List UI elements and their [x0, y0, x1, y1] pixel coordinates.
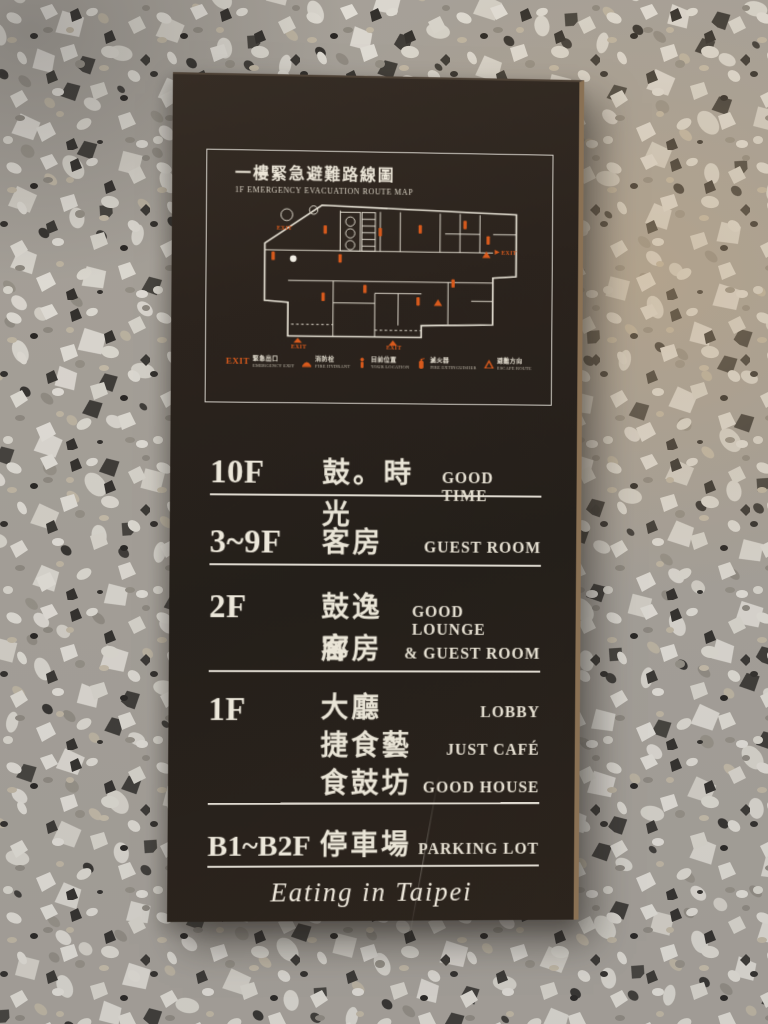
svg-text:EXIT: EXIT — [386, 346, 402, 352]
directory-sign: 一樓緊急避難路線圖 1F EMERGENCY EVACUATION ROUTE … — [167, 72, 584, 922]
venue-name-zh: 客房 — [321, 628, 383, 670]
floor-label: 1F — [208, 689, 246, 731]
directory-row-2f: 2F 鼓逸廊 GOOD LOUNGE 客房 & GUEST ROOM — [209, 586, 541, 672]
directory-row-b1-b2f: B1~B2F 停車場 PARKING LOT — [207, 825, 539, 868]
legend-item-emergency-exit: EXIT 緊急出口 EMERGENCY EXIT — [226, 356, 295, 370]
escape-direction-icon — [483, 359, 494, 370]
venue-name-en: GUEST ROOM — [424, 539, 541, 557]
legend-item-fire-hydrant: 消防栓 FIRE HYDRANT — [301, 356, 350, 369]
venue-name-en: GOOD TIME — [442, 470, 542, 506]
evacuation-map-panel: 一樓緊急避難路線圖 1F EMERGENCY EVACUATION ROUTE … — [205, 149, 554, 406]
directory-row-1f: 1F 大廳 LOBBY 捷食藝 JUST CAFÉ 食鼓坊 GOOD HOUSE — [208, 689, 540, 805]
venue-name-zh: 大廳 — [321, 689, 383, 727]
map-exit-labels: EXIT EXIT EXIT EXIT — [276, 226, 517, 352]
map-title-zh: 一樓緊急避難路線圖 — [235, 159, 535, 188]
venue-name-zh: 捷食藝 — [320, 727, 412, 765]
your-location-icon — [357, 357, 368, 368]
floor-label: 10F — [210, 451, 265, 493]
venue-name-en: LOBBY — [480, 704, 540, 722]
directory-row-3-9f: 3~9F 客房 GUEST ROOM — [209, 521, 541, 567]
fire-extinguisher-icon — [416, 358, 427, 369]
exit-badge-icon: EXIT — [226, 356, 250, 366]
fire-equipment-marks — [271, 218, 500, 347]
terrazzo-wall: 一樓緊急避難路線圖 1F EMERGENCY EVACUATION ROUTE … — [0, 0, 768, 1024]
venue-name-zh: 客房 — [322, 522, 384, 564]
legend-item-your-location: 目前位置 YOUR LOCATION — [357, 357, 409, 370]
floor-label: 3~9F — [209, 521, 281, 563]
venue-name-en: & GUEST ROOM — [404, 646, 540, 664]
hotel-slogan-script: Eating in Taipei — [167, 876, 574, 909]
legend-item-fire-extinguisher: 滅火器 FIRE EXTINGUISHER — [416, 358, 476, 372]
venue-name-en: PARKING LOT — [418, 841, 539, 859]
directory-row-10f: 10F 鼓。時光 GOOD TIME — [210, 451, 542, 497]
venue-name-en: JUST CAFÉ — [446, 742, 540, 760]
floor-label: 2F — [209, 586, 247, 628]
venue-name-en: GOOD LOUNGE — [412, 604, 541, 640]
svg-text:EXIT: EXIT — [277, 226, 293, 232]
venue-name-en: GOOD HOUSE — [423, 779, 540, 797]
fire-hydrant-icon — [301, 356, 312, 367]
svg-text:EXIT: EXIT — [291, 345, 307, 351]
floor-label: B1~B2F — [207, 826, 311, 868]
venue-name-zh: 停車場 — [320, 825, 412, 865]
your-location-dot — [290, 255, 297, 262]
map-legend: EXIT 緊急出口 EMERGENCY EXIT 消防栓 FIRE HYDRAN… — [224, 356, 534, 372]
legend-item-escape-direction: 避難方向 ESCAPE ROUTE — [483, 359, 531, 372]
evacuation-floorplan: EXIT EXIT EXIT EXIT — [224, 197, 535, 352]
venue-name-zh: 食鼓坊 — [320, 765, 412, 803]
svg-text:EXIT: EXIT — [501, 251, 516, 257]
